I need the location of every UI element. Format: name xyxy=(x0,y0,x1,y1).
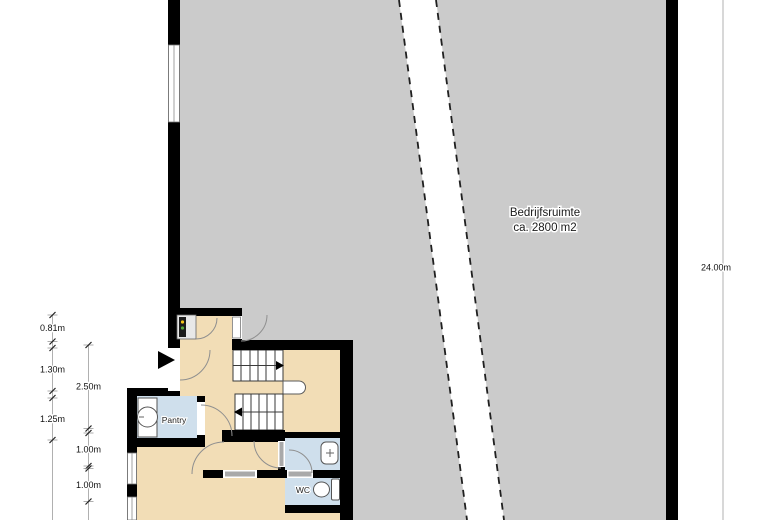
dim-label-1-25: 1.25m xyxy=(40,414,65,424)
dim-label-2-50: 2.50m xyxy=(76,382,101,392)
floorplan-canvas: Bedrijfsruimte ca. 2800 m2 Pantry WC 0.8… xyxy=(0,0,780,520)
wall-hall-divider-b xyxy=(257,470,287,478)
dim-label-0-81: 0.81m xyxy=(40,323,65,333)
stair-railing xyxy=(283,381,306,394)
dim-label-24-00: 24.00m xyxy=(701,263,731,273)
dimension-right: 24.00m xyxy=(701,0,731,520)
wc-door-threshold xyxy=(289,472,312,477)
floorplan-svg: Bedrijfsruimte ca. 2800 m2 Pantry WC 0.8… xyxy=(0,0,780,520)
wall-stair-top xyxy=(232,340,353,350)
vestibule-door-threshold xyxy=(280,442,284,466)
dim-label-1-00b: 1.00m xyxy=(76,480,101,490)
hall-door-leaf xyxy=(233,317,241,338)
dimensions-left-col1: 0.81m 1.30m 1.25m xyxy=(40,312,65,520)
wall-hall-divider-a xyxy=(203,470,223,478)
dim-label-1-30: 1.30m xyxy=(40,365,65,375)
dim-label-1-00a: 1.00m xyxy=(76,445,101,455)
room-label-pantry: Pantry xyxy=(162,415,187,425)
wall-section-right xyxy=(340,340,353,520)
room-label-wc: WC xyxy=(296,485,310,495)
meter-indicator-yellow xyxy=(181,320,184,323)
entrance-door-opening xyxy=(168,348,180,391)
wall-hall-divider-c xyxy=(313,470,340,478)
dimensions-left-col2: 2.50m 1.00m 1.00m xyxy=(76,342,101,520)
toilet-bowl-icon xyxy=(314,482,330,497)
wall-vestibule-top xyxy=(285,432,340,438)
room-door-threshold xyxy=(225,472,255,477)
pantry-door-opening xyxy=(197,402,205,435)
hall-label-line1: Bedrijfsruimte xyxy=(510,207,580,219)
wall-right-hall xyxy=(666,0,678,520)
wall-wc-bottom xyxy=(285,505,340,513)
wall-pantry-bottom xyxy=(127,438,205,447)
meter-indicator-green xyxy=(181,326,184,329)
toilet-tank-icon xyxy=(332,479,340,500)
hall-label-line2: ca. 2800 m2 xyxy=(513,222,576,234)
